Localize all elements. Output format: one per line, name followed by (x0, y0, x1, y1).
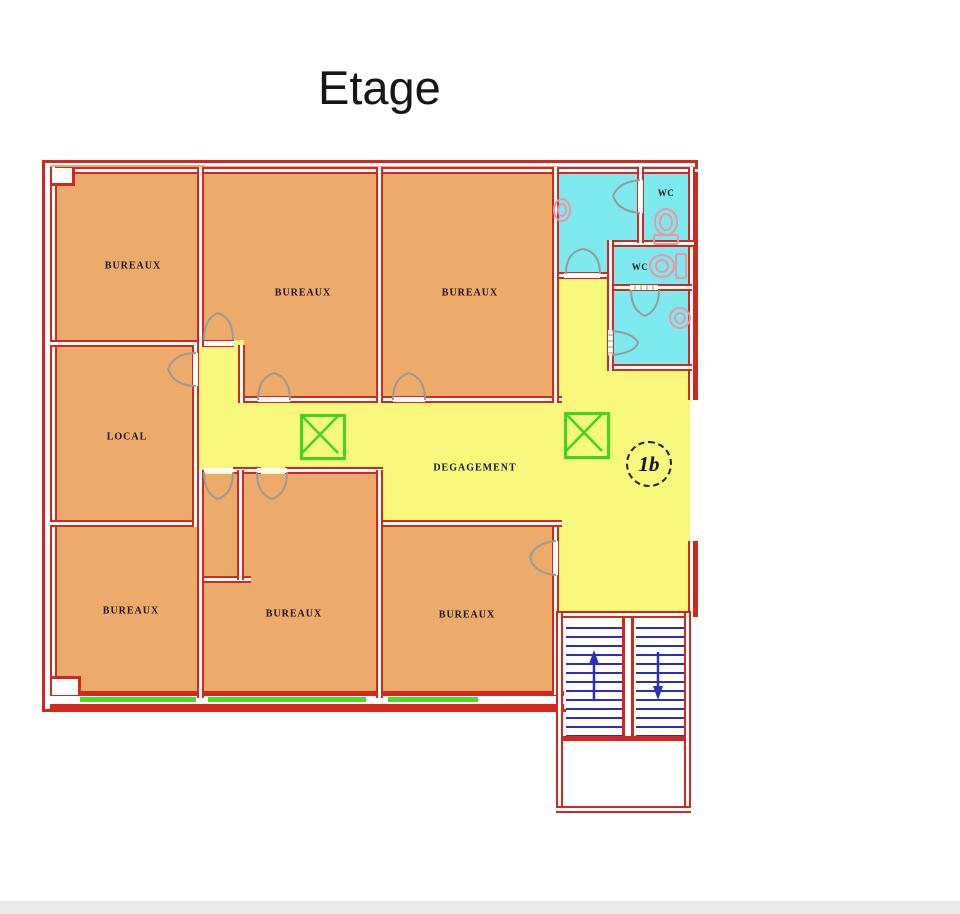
page-title: Etage (318, 60, 441, 115)
unit-marker: 1b (626, 441, 672, 487)
door-arc (530, 541, 556, 575)
sink-icon (670, 308, 690, 328)
stair-arrow-down-head (653, 686, 663, 700)
room-label-wc: WC (658, 188, 675, 198)
stair-arrow-up-head (589, 650, 599, 664)
room-label-local: LOCAL (107, 432, 148, 443)
door-arc (168, 353, 196, 386)
door-arc (612, 331, 638, 355)
sink-icon (554, 199, 570, 221)
room-label-bureaux: BUREAUX (103, 606, 159, 617)
toilet-icon (650, 255, 674, 277)
toilet-icon (660, 214, 672, 230)
door-arc (613, 180, 640, 213)
door-arc (204, 313, 233, 340)
toilet-icon (656, 260, 668, 272)
duct-x-left (302, 416, 338, 453)
plan-symbols-overlay (0, 0, 960, 914)
room-label-bureaux: BUREAUX (105, 261, 161, 272)
door-arc (257, 472, 287, 499)
toilet-icon (655, 209, 677, 235)
toilet-tank-icon (654, 235, 678, 244)
room-label-bureaux: BUREAUX (442, 288, 498, 299)
corridor-label: DEGAGEMENT (433, 463, 516, 474)
door-arc (566, 249, 600, 274)
door-arc (393, 373, 425, 400)
duct-x-right (566, 414, 602, 451)
floor-plan-page: Etage (0, 0, 960, 914)
toilet-tank-icon (676, 254, 686, 278)
room-label-wc: WC (632, 262, 649, 272)
door-arc (631, 290, 659, 316)
room-label-bureaux: BUREAUX (439, 610, 495, 621)
door-arc (258, 373, 290, 400)
door-arc (204, 472, 233, 499)
room-label-bureaux: BUREAUX (266, 609, 322, 620)
sink-icon (675, 313, 685, 323)
sink-icon (558, 204, 566, 216)
room-label-bureaux: BUREAUX (275, 288, 331, 299)
unit-marker-label: 1b (639, 452, 660, 477)
